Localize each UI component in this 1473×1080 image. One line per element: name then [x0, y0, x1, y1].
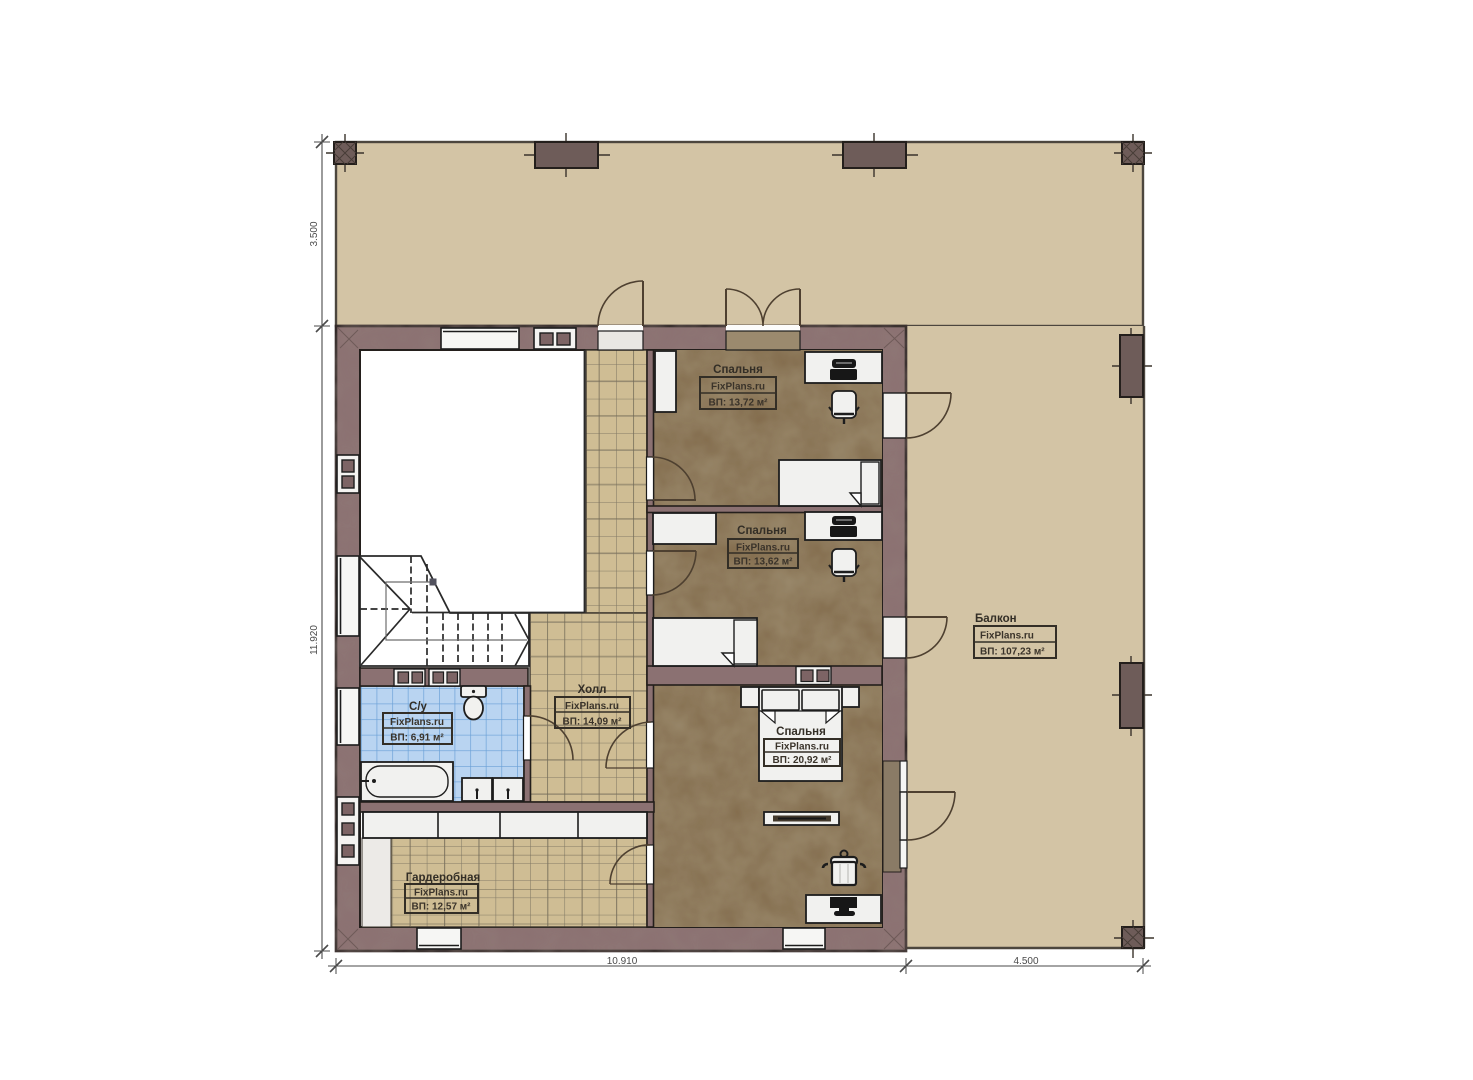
- svg-text:Спальня: Спальня: [713, 364, 763, 376]
- svg-text:Гардеробная: Гардеробная: [406, 872, 480, 884]
- svg-text:Балкон: Балкон: [975, 613, 1017, 625]
- svg-text:ВП: 13,62 м²: ВП: 13,62 м²: [733, 557, 793, 568]
- svg-text:ВП: 12,57 м²: ВП: 12,57 м²: [411, 902, 471, 913]
- svg-text:ВП: 13,72 м²: ВП: 13,72 м²: [708, 398, 768, 409]
- svg-text:ВП: 14,09 м²: ВП: 14,09 м²: [562, 717, 622, 728]
- svg-text:Спальня: Спальня: [737, 525, 787, 537]
- svg-text:FixPlans.ru: FixPlans.ru: [414, 888, 468, 899]
- svg-text:FixPlans.ru: FixPlans.ru: [775, 742, 829, 753]
- svg-text:Спальня: Спальня: [776, 726, 826, 738]
- svg-text:11.920: 11.920: [309, 625, 320, 655]
- svg-text:FixPlans.ru: FixPlans.ru: [736, 543, 790, 554]
- svg-text:ВП: 6,91 м²: ВП: 6,91 м²: [390, 733, 444, 744]
- svg-text:FixPlans.ru: FixPlans.ru: [390, 717, 444, 728]
- svg-text:ВП: 107,23 м²: ВП: 107,23 м²: [980, 647, 1045, 658]
- svg-text:10.910: 10.910: [607, 956, 638, 967]
- svg-text:FixPlans.ru: FixPlans.ru: [711, 382, 765, 393]
- svg-text:Холл: Холл: [578, 684, 607, 696]
- svg-text:С/у: С/у: [409, 701, 428, 713]
- svg-text:ВП: 20,92 м²: ВП: 20,92 м²: [772, 755, 832, 766]
- svg-text:4.500: 4.500: [1013, 956, 1038, 967]
- svg-text:FixPlans.ru: FixPlans.ru: [565, 701, 619, 712]
- svg-text:3.500: 3.500: [309, 221, 320, 246]
- svg-text:FixPlans.ru: FixPlans.ru: [980, 631, 1034, 642]
